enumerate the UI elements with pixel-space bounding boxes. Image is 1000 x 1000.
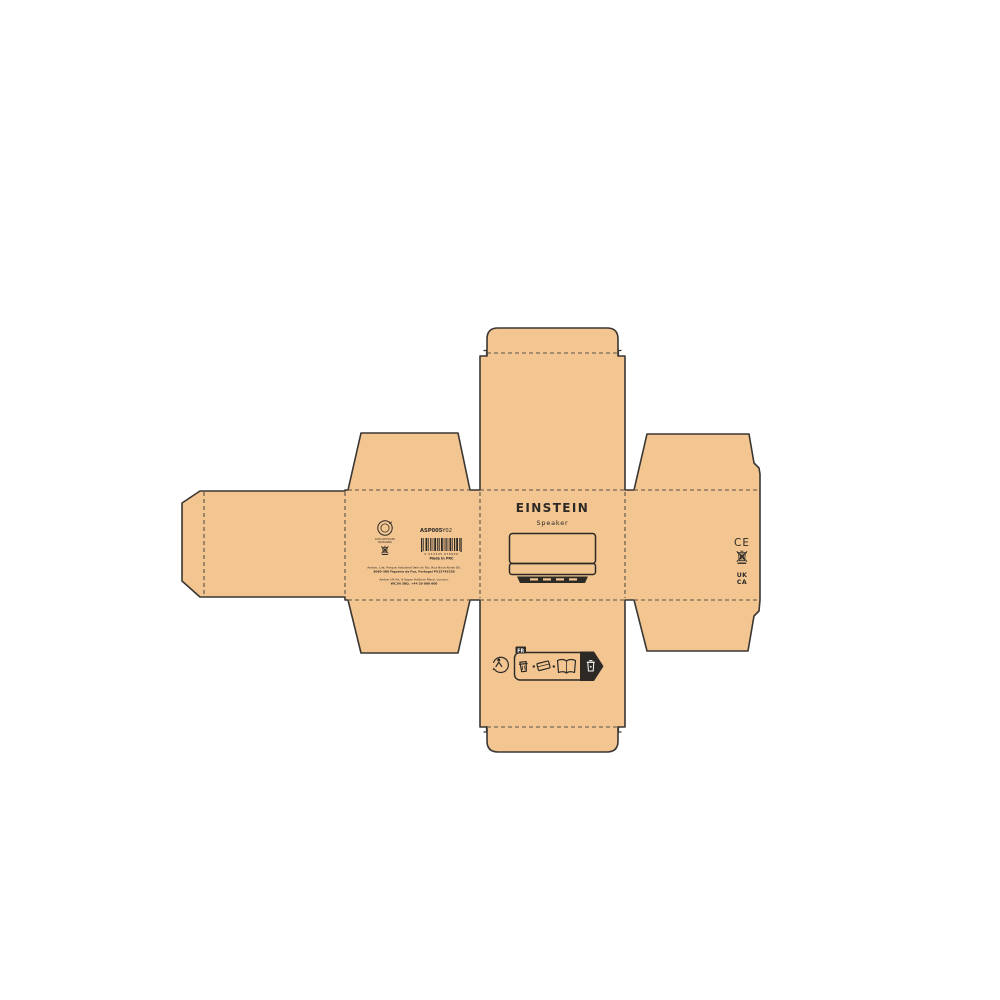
ce-mark: CE: [734, 537, 750, 549]
sku-line: ASP005 -Y02: [420, 528, 452, 534]
separator-dot-2: [553, 665, 555, 667]
ukca-mark: UK CA: [737, 572, 748, 586]
barcode-digits: 0 012345 678906: [425, 552, 459, 556]
made-in-label: Made in PRC: [430, 557, 454, 561]
dieline-outline: [182, 328, 760, 752]
address2-line2: WC1N 3BQ, +44 20 000 000: [391, 582, 438, 586]
sku-suffix: -Y02: [441, 528, 452, 534]
ukca-top: UK: [737, 572, 748, 579]
packaging-dieline-canvas: EINSTEIN Speaker 100% RECYCLED PACKAGING…: [0, 0, 1000, 1000]
product-name: Speaker: [536, 519, 568, 527]
dieline-drawing: EINSTEIN Speaker 100% RECYCLED PACKAGING…: [0, 0, 1000, 1000]
separator-dot-1: [533, 665, 535, 667]
brand-name: EINSTEIN: [516, 501, 589, 515]
sku-code: ASP005: [420, 528, 443, 534]
address1-line2: 3080-380 Figueira da Foz, Portugal P5137…: [373, 570, 455, 574]
address-block-1: Amber, Lda. Parque Industrial Vale do Ri…: [367, 566, 461, 574]
ukca-bottom: CA: [737, 579, 747, 586]
logo-caption-line2: PACKAGING: [378, 541, 392, 544]
fr-tag: FR: [517, 648, 524, 654]
